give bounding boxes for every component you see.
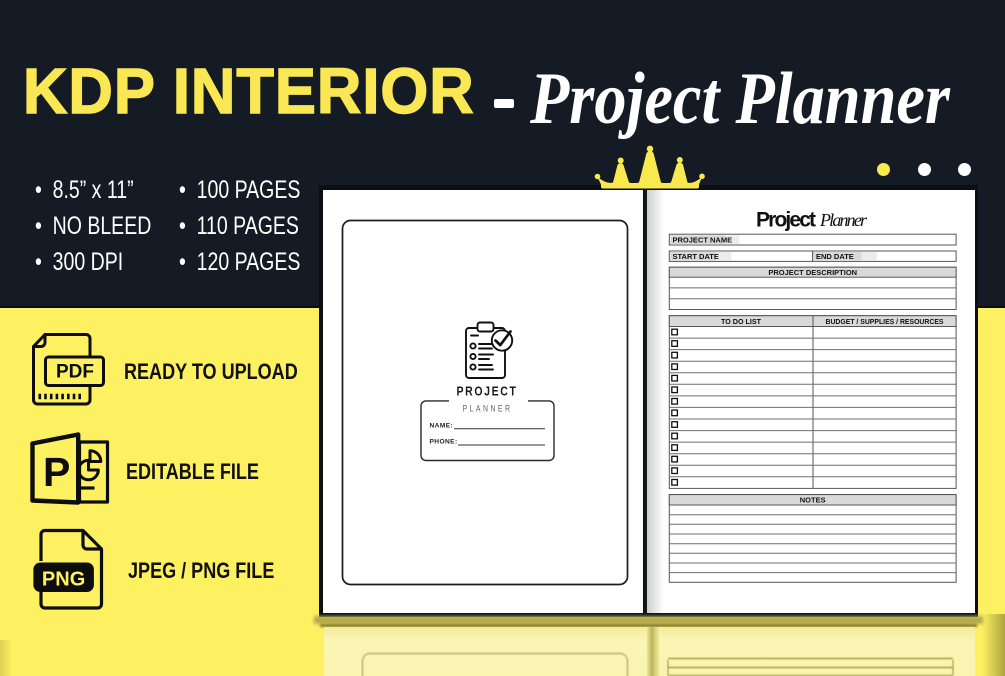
svg-text:PDF: PDF xyxy=(56,362,94,383)
svg-text:END DATE: END DATE xyxy=(816,252,854,261)
svg-text:Project: Project xyxy=(756,209,816,232)
svg-text:PROJECT NAME: PROJECT NAME xyxy=(673,235,733,244)
svg-text:TO DO LIST: TO DO LIST xyxy=(721,317,761,326)
svg-text:P: P xyxy=(43,449,70,495)
svg-text:Planner: Planner xyxy=(819,210,868,230)
svg-text:PROJECT: PROJECT xyxy=(457,383,518,398)
svg-text:NAME:: NAME: xyxy=(430,422,454,429)
svg-text:PNG: PNG xyxy=(42,569,85,591)
svg-text:BUDGET / SUPPLIES / RESOURCES: BUDGET / SUPPLIES / RESOURCES xyxy=(826,317,944,326)
svg-text:PLANNER: PLANNER xyxy=(463,403,513,414)
svg-text:PROJECT DESCRIPTION: PROJECT DESCRIPTION xyxy=(768,268,857,277)
svg-text:PHONE:: PHONE: xyxy=(430,439,458,446)
svg-text:START DATE: START DATE xyxy=(673,252,719,261)
svg-text:NOTES: NOTES xyxy=(800,496,826,505)
